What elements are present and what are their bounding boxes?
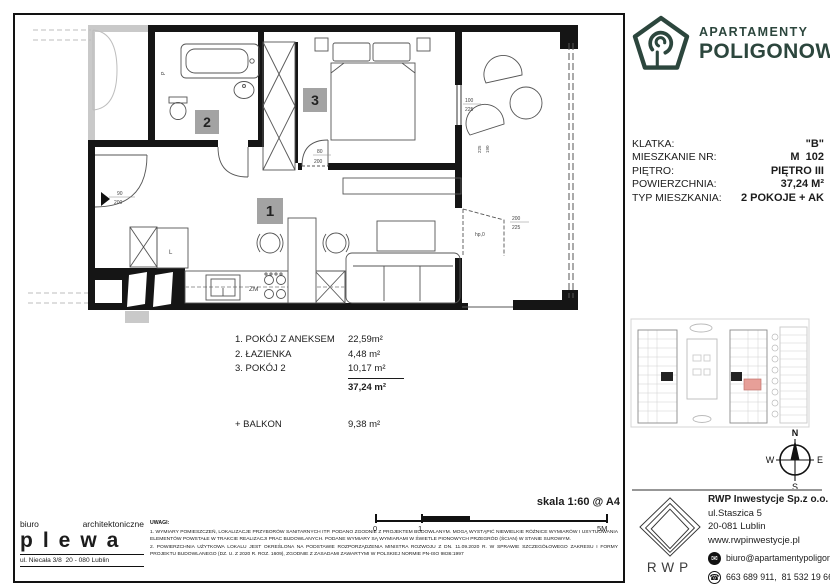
bathroom-fixtures: [169, 44, 259, 120]
note-2: 2. POWIERZCHNIA UŻYTKOWA LOKALU JEST OKR…: [150, 544, 618, 559]
living-furniture: [343, 178, 461, 303]
developer-phones: 663 689 911, 81 532 19 66: [726, 572, 830, 582]
washer-label: P: [161, 71, 167, 75]
email-icon: ✉: [708, 552, 721, 565]
developer-city: 20-081 Lublin: [708, 521, 828, 532]
note-1: 1. WYMIARY POMIESZCZEŃ, LOKALIZACJE PRZY…: [150, 529, 618, 544]
minimap-unit-highlight: [744, 379, 761, 390]
dim-window: 100: [465, 98, 474, 104]
compass-w: W: [766, 455, 775, 465]
room-1-label: 1: [266, 203, 274, 220]
unit-details: KLATKA:"B" MIESZKANIE NR:M 102 PIĘTRO:PI…: [632, 138, 824, 205]
compass-e: E: [817, 455, 823, 465]
room-row: 3. POKÓJ 210,17 m²: [235, 363, 420, 374]
kitchen: [185, 271, 345, 303]
kitchen-sink-label: ZM: [249, 286, 258, 293]
developer-email: biuro@apartamentypoligonowa.pl: [726, 553, 830, 563]
north-arrow: [791, 440, 800, 460]
rwp-diamond-logo: [632, 496, 708, 558]
developer-phone-row: ☎ 663 689 911, 81 532 19 66: [708, 571, 828, 584]
svg-text:225: 225: [512, 225, 521, 231]
architect-address: ul. Niecała 3/8 20 - 080 Lublin: [20, 554, 144, 567]
architect-stamp: biuroarchitektoniczne plewa ul. Niecała …: [20, 519, 144, 567]
developer-email-row: ✉ biuro@apartamentypoligonowa.pl: [708, 552, 828, 565]
minimap-core-a: [661, 372, 673, 381]
developer-street: ul.Staszica 5: [708, 508, 828, 519]
balcony-rail: [462, 43, 573, 307]
total-rule: [348, 378, 404, 379]
window: [457, 85, 461, 125]
detail-row: KLATKA:"B": [632, 138, 824, 151]
dim-balcony-v2: 190: [485, 145, 490, 153]
balcony-door-label: hp,0: [475, 232, 485, 238]
dim-entry: 90: [117, 191, 123, 197]
svg-text:225: 225: [465, 107, 474, 113]
svg-text:200: 200: [114, 200, 123, 206]
compass-s: S: [792, 482, 798, 492]
notes-heading: UWAGI:: [150, 520, 618, 528]
room-3-label: 3: [311, 92, 319, 108]
detail-row: POWIERZCHNIA:37,24 M²: [632, 178, 824, 191]
rwp-logo-text: RWP: [634, 560, 706, 575]
room-row: 1. POKÓJ Z ANEKSEM22,59m²: [235, 334, 420, 345]
architect-name: plewa: [20, 530, 144, 552]
bedroom-furniture: [315, 38, 430, 140]
room-row: 2. ŁAZIENKA4,48 m²: [235, 349, 420, 360]
developer-company: RWP Inwestycje Sp.z o.o.: [708, 494, 828, 505]
detail-row: TYP MIESZKANIA:2 POKOJE + AK: [632, 192, 824, 205]
dim-balcony-door: 200: [512, 216, 521, 222]
balcony-furniture: [466, 56, 542, 135]
brand-line-2: POLIGONOWA: [699, 40, 830, 64]
entry-marker: [101, 192, 110, 206]
room-program-list: 1. POKÓJ Z ANEKSEM22,59m² 2. ŁAZIENKA4,4…: [235, 334, 420, 433]
brand-header: APARTAMENTY POLIGONOWA: [630, 14, 830, 74]
developer-contact: RWP Inwestycje Sp.z o.o. ul.Staszica 5 2…: [708, 494, 828, 584]
svg-text:200: 200: [314, 159, 323, 165]
compass-n: N: [792, 428, 799, 438]
scale-title: skala 1:60 @ A4: [375, 496, 620, 508]
floor-plan-drawing: 1 2 3 ZM P L hp,0 90 200 80 200 100 225 …: [13, 13, 625, 325]
dim-balcony-v1: 225: [477, 145, 482, 153]
developer-website: www.rwpinwestycje.pl: [708, 535, 828, 546]
detail-row: PIĘTRO:PIĘTRO III: [632, 165, 824, 178]
phone-icon: ☎: [708, 571, 721, 584]
minimap-core-b: [731, 372, 742, 381]
total-area-row: 37,24 m²: [235, 382, 420, 393]
site-plan-minimap: [630, 315, 810, 430]
fridge-label: L: [169, 250, 173, 256]
minimap-trees: [772, 334, 778, 417]
dim-room3-door: 80: [317, 149, 323, 155]
detail-row: MIESZKANIE NR:M 102: [632, 151, 824, 164]
notes-block: UWAGI: 1. WYMIARY POMIESZCZEŃ, LOKALIZAC…: [150, 520, 618, 558]
right-panel-divider: [632, 489, 822, 491]
floor-plan-sheet: 1 2 3 ZM P L hp,0 90 200 80 200 100 225 …: [0, 0, 830, 587]
compass-rose: N S W E: [763, 428, 827, 492]
brand-pentagon-icon: [630, 14, 692, 74]
room-2-label: 2: [203, 114, 211, 130]
balcony-row: + BALKON9,38 m²: [235, 419, 420, 430]
brand-line-1: APARTAMENTY: [699, 25, 830, 39]
